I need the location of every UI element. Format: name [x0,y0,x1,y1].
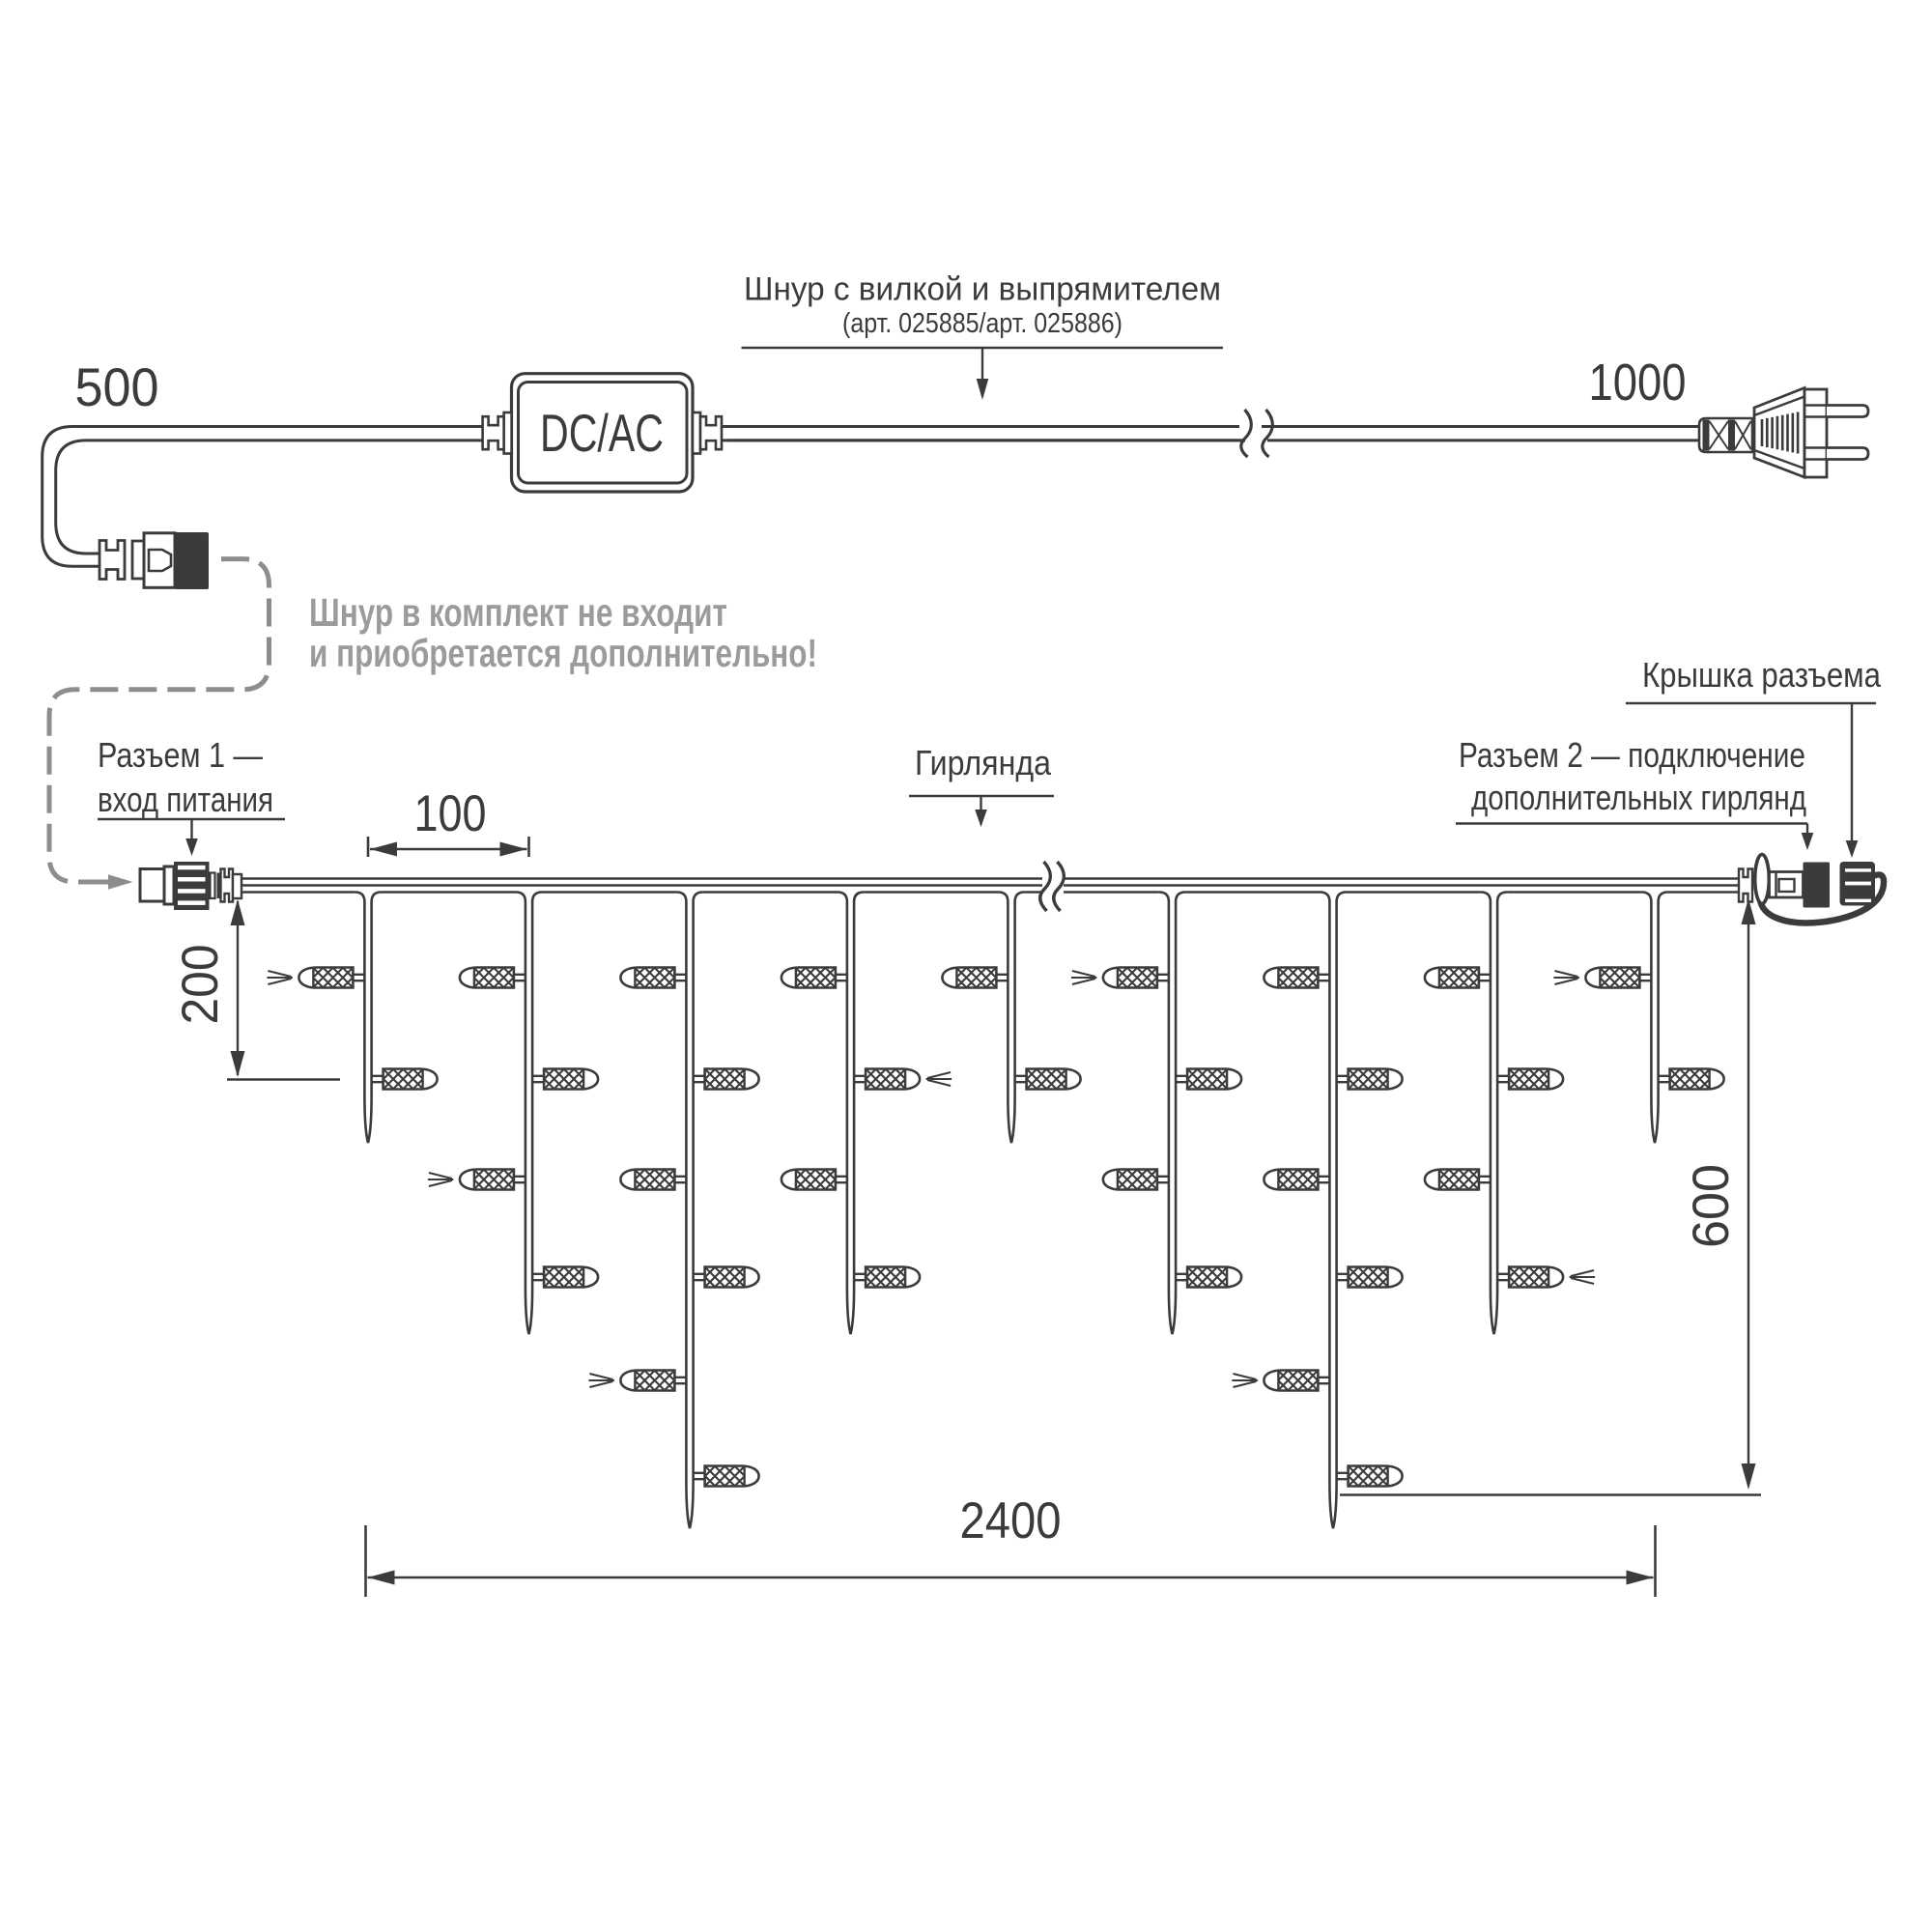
svg-text:100: 100 [414,785,487,842]
svg-text:600: 600 [1683,1164,1740,1248]
svg-text:Гирлянда: Гирлянда [915,743,1052,782]
svg-text:и приобретается дополнительно!: и приобретается дополнительно! [309,631,817,675]
svg-text:2400: 2400 [960,1492,1062,1549]
svg-text:Шнур в комплект не входит: Шнур в комплект не входит [309,590,727,635]
svg-text:500: 500 [75,356,159,417]
svg-text:дополнительных гирлянд: дополнительных гирлянд [1471,778,1806,817]
svg-text:DC/AC: DC/AC [540,403,664,463]
svg-text:Разъем 2 — подключение: Разъем 2 — подключение [1459,735,1805,775]
svg-text:Разъем 1 —: Разъем 1 — [98,735,263,775]
svg-text:Шнур с вилкой и выпрямителем: Шнур с вилкой и выпрямителем [744,271,1221,308]
svg-text:вход питания: вход питания [98,780,273,819]
svg-text:(арт. 025885/арт. 025886): (арт. 025885/арт. 025886) [842,308,1122,339]
svg-text:Крышка разъема: Крышка разъема [1642,655,1882,695]
svg-text:1000: 1000 [1589,354,1687,412]
svg-text:200: 200 [172,945,229,1025]
